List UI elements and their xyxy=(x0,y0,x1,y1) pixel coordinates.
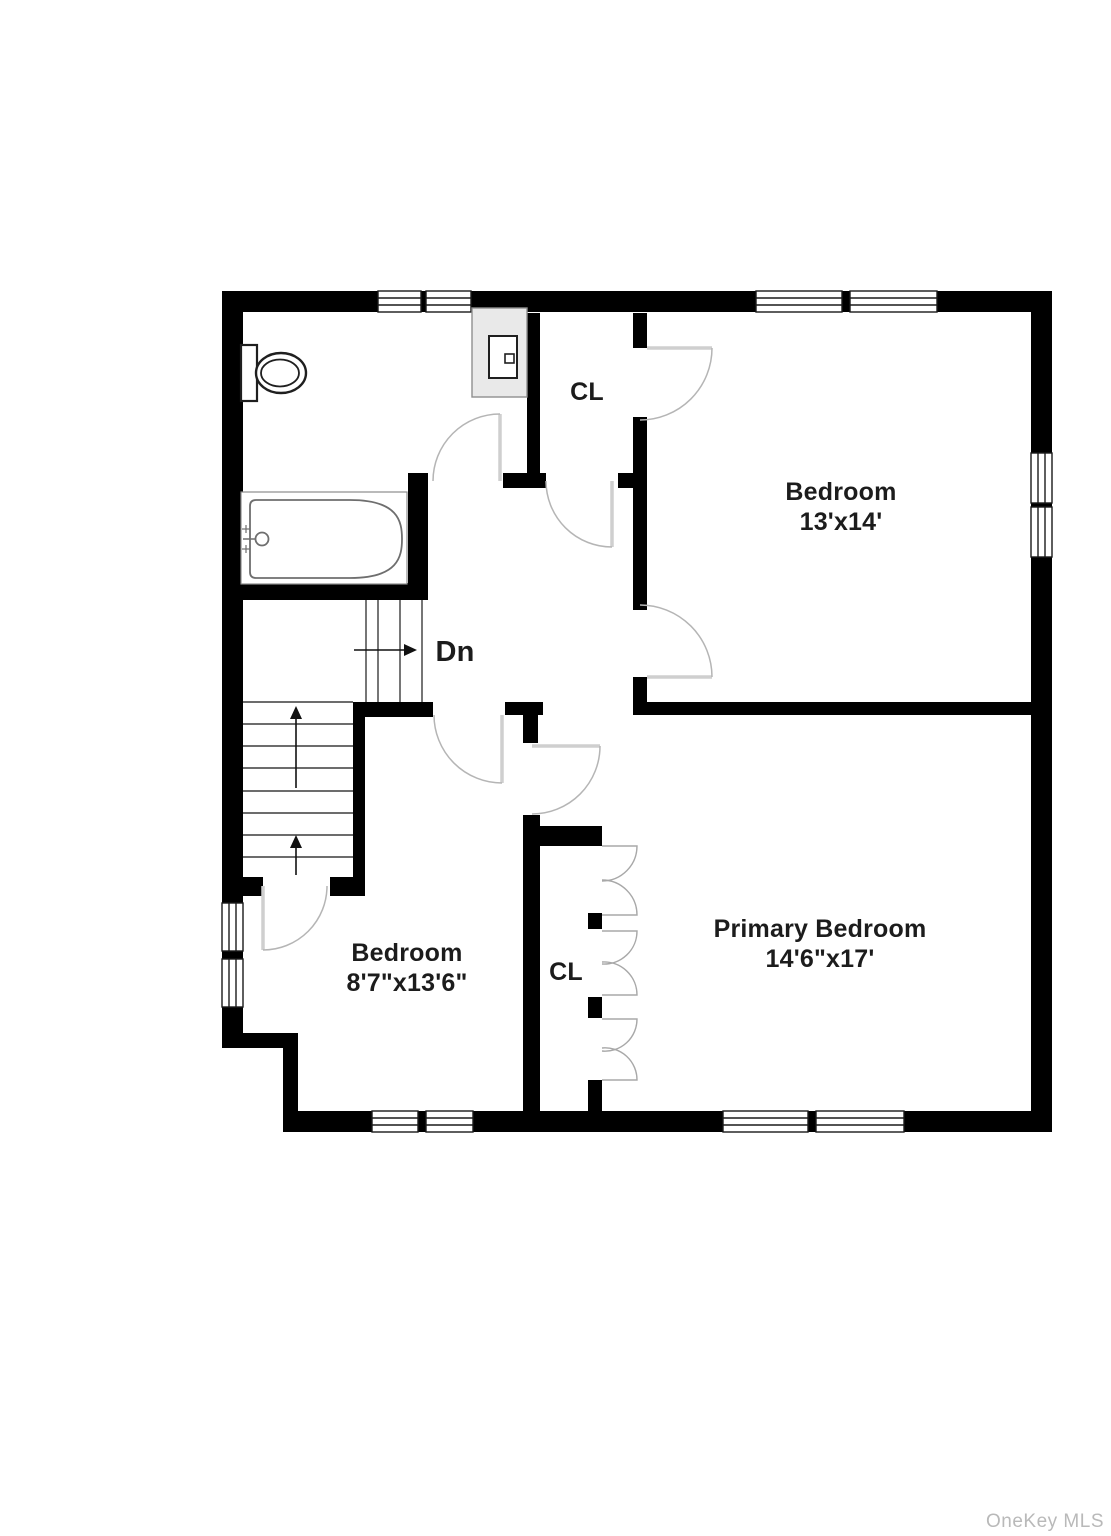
wall-bathroom-east xyxy=(408,473,428,600)
bedroom13-entry-door-arc xyxy=(640,605,712,677)
primary-entry-door-arc xyxy=(532,746,600,814)
wall-bedroom87-north-a xyxy=(222,877,263,896)
bifold-door-leaf xyxy=(602,1048,637,1080)
bedroom87-dims: 8'7"x13'6" xyxy=(346,969,467,997)
staircase xyxy=(243,600,422,857)
bathtub-icon xyxy=(241,492,407,584)
wall-closet2-west xyxy=(523,815,540,1111)
wall-stairwell-east xyxy=(353,702,365,877)
bedroom13-closet-door-arc xyxy=(640,348,712,420)
wall-bifold-stub-b xyxy=(588,913,602,929)
primary-bedroom-dims: 14'6"x17' xyxy=(766,945,875,973)
wall-bifold-stub-a xyxy=(588,830,602,846)
wall-bifold-stub-c xyxy=(588,997,602,1018)
floor-plan-page: Bedroom 13'x14' CL Dn Bedroom 8'7"x13'6"… xyxy=(0,0,1111,1536)
stairs-down-label: Dn xyxy=(435,636,474,668)
bifold-door-leaf xyxy=(602,931,637,964)
wall-hall-north-a xyxy=(503,473,546,488)
closet-top-door-arc xyxy=(546,481,612,547)
closet-top-label: CL xyxy=(570,378,604,406)
wall-vanity-east xyxy=(527,313,540,473)
wall-hall-tee-stub xyxy=(523,715,538,743)
bifold-closet-doors xyxy=(602,846,637,1080)
bifold-door-leaf xyxy=(602,880,637,915)
wall-step-vertical xyxy=(283,1033,298,1132)
bifold-door-leaf xyxy=(602,1019,637,1051)
primary-bedroom-label: Primary Bedroom xyxy=(714,915,927,943)
wall-hall-tee xyxy=(505,702,543,715)
wall-bedroom13-west-b xyxy=(633,417,647,610)
wall-bathroom-south xyxy=(222,583,428,600)
sink-faucet xyxy=(505,354,514,363)
wall-bedroom13-west-a xyxy=(633,313,647,348)
sink-icon xyxy=(472,308,527,397)
bifold-door-leaf xyxy=(602,846,637,881)
bifold-door-leaf xyxy=(602,962,637,995)
bedroom87-label: Bedroom xyxy=(351,939,462,967)
hall-south-door-arc xyxy=(434,715,502,783)
watermark: OneKey MLS xyxy=(986,1511,1104,1532)
bedroom87-door-arc xyxy=(263,886,327,950)
wall-bedroom13-west-c xyxy=(633,677,647,702)
bedroom13-label: Bedroom xyxy=(785,478,896,506)
up-arrow-icon xyxy=(290,835,302,875)
wall-bedroom87-north-b xyxy=(330,877,365,896)
closet-bottom-label: CL xyxy=(549,958,583,986)
wall-bedroom13-south xyxy=(633,702,1052,715)
up-arrow-icon xyxy=(290,706,302,788)
wall-hall-north-stub xyxy=(618,473,633,488)
bathroom-fixtures xyxy=(241,308,527,584)
walls xyxy=(222,291,1052,1132)
floor-plan: Bedroom 13'x14' CL Dn Bedroom 8'7"x13'6"… xyxy=(0,0,1111,1536)
down-arrow-icon xyxy=(354,644,417,656)
bedroom13-dims: 13'x14' xyxy=(800,508,883,536)
bathroom-door-arc xyxy=(433,414,500,481)
toilet-icon xyxy=(241,345,306,401)
wall-bifold-stub-d xyxy=(588,1080,602,1111)
